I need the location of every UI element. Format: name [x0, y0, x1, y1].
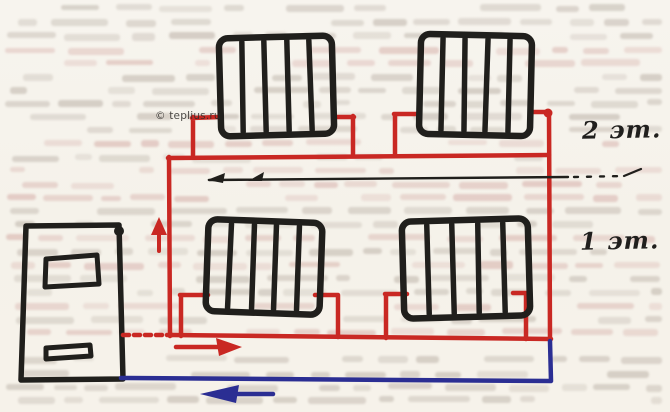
scanned-page: 2 эт. 1 эт. © teplius.ru — [0, 0, 670, 412]
radiator-2f-left — [219, 36, 335, 137]
boiler — [21, 225, 124, 380]
label-floor-2: 2 эт. — [582, 114, 662, 144]
ceiling-flow-arrow-left-icon — [207, 173, 225, 183]
heating-scheme-diagram — [0, 0, 670, 412]
flow-arrow-right-icon — [176, 338, 242, 356]
radiator-1f-left — [205, 219, 322, 315]
radiator-2f-right — [419, 34, 532, 136]
boiler-door-upper — [45, 255, 99, 287]
boiler-corner-blot — [114, 226, 124, 236]
supply-pipes — [123, 109, 553, 340]
boiler-door-lower — [46, 345, 91, 359]
label-floor-1: 1 эт. — [580, 225, 660, 255]
radiator-1f-right — [402, 218, 531, 318]
flow-arrow-up-icon — [151, 217, 167, 251]
watermark: © teplius.ru — [155, 110, 221, 122]
ceiling-line — [207, 169, 641, 183]
flow-arrow-return-left-icon — [200, 385, 273, 403]
